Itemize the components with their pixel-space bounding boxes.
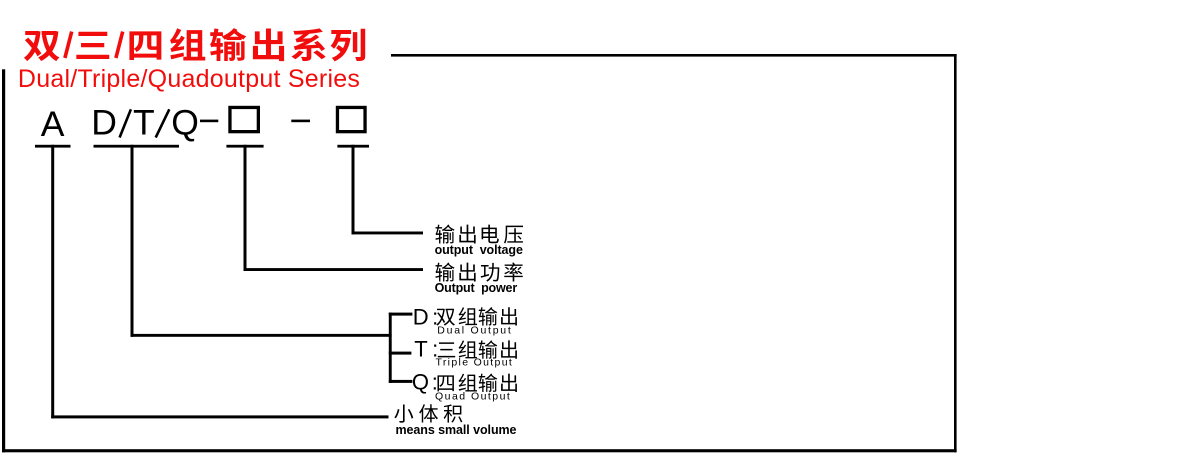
svg-text:means small volume: means small volume bbox=[396, 423, 517, 437]
svg-text:D: D bbox=[91, 102, 117, 142]
svg-text:A: A bbox=[41, 104, 65, 144]
svg-text:Dual/Triple/Quadoutput Series: Dual/Triple/Quadoutput Series bbox=[18, 65, 360, 93]
svg-text:Output power: Output power bbox=[435, 281, 518, 295]
svg-text:T: T bbox=[133, 102, 155, 142]
svg-text:output voltage: output voltage bbox=[435, 243, 523, 257]
svg-text:Q: Q bbox=[171, 102, 199, 142]
svg-text:Q:: Q: bbox=[412, 370, 438, 395]
svg-text:Triple Output: Triple Output bbox=[436, 357, 512, 369]
svg-text:Dual Output: Dual Output bbox=[437, 325, 511, 337]
svg-text:D:: D: bbox=[413, 304, 438, 329]
svg-text:Quad Output: Quad Output bbox=[435, 391, 510, 403]
